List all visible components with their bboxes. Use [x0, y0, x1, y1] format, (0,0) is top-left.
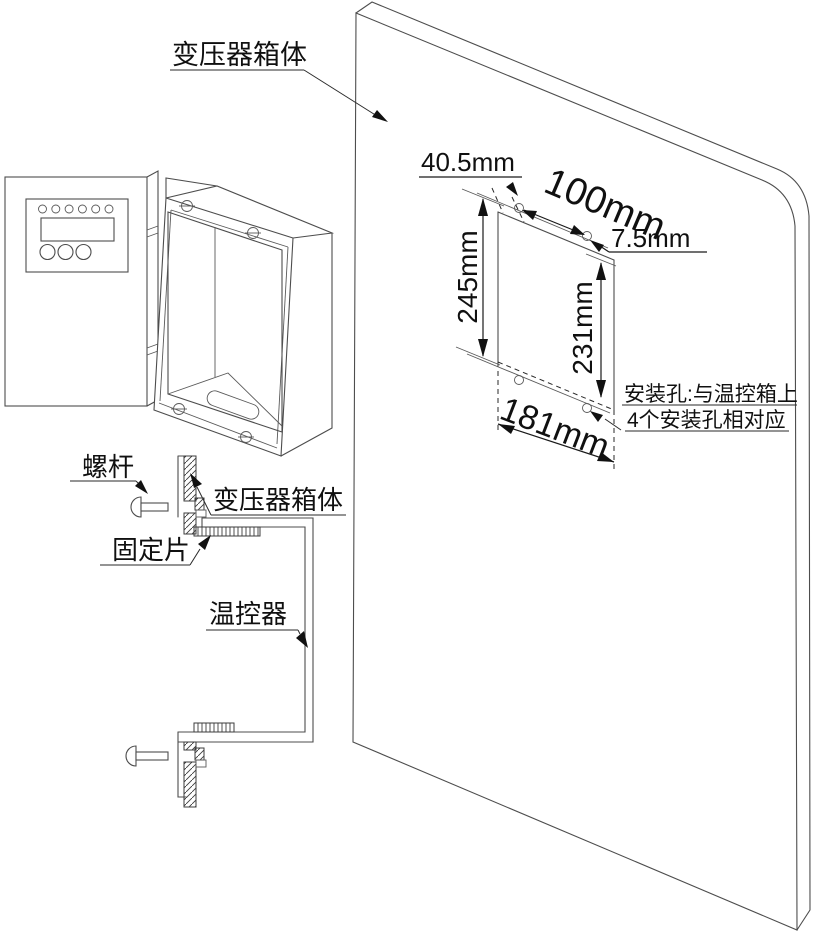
screw-bottom [126, 746, 168, 766]
transformer-box-top-label: 变压器箱体 [172, 40, 307, 70]
wall-section-bottom [184, 742, 206, 807]
dim-231mm-label: 231mm [567, 281, 598, 374]
callout-transformer-box-section: 变压器箱体 [190, 473, 346, 515]
dim-40-5mm-label: 40.5mm [421, 147, 515, 177]
dim-7-5mm-label: 7.5mm [611, 223, 690, 253]
installation-diagram: 40.5mm 100mm 7.5mm 245mm 231mm 181mm [0, 0, 826, 934]
note-line-2: 4个安装孔相对应 [627, 409, 786, 432]
transformer-box-section-label: 变压器箱体 [213, 485, 343, 515]
callout-fixing-piece: 固定片 [100, 535, 211, 565]
dim-245mm-label: 245mm [452, 230, 483, 323]
mounting-bezel [154, 178, 332, 456]
screw-top [131, 497, 168, 517]
transformer-panel [353, 2, 810, 930]
screw-label: 螺杆 [82, 452, 134, 482]
callout-screw: 螺杆 [70, 452, 148, 494]
callout-thermostat: 温控器 [206, 599, 308, 648]
fixing-strip-top [194, 527, 260, 536]
note-line-1: 安装孔:与温控箱上 [624, 383, 798, 406]
diagram-canvas: 40.5mm 100mm 7.5mm 245mm 231mm 181mm [0, 0, 826, 934]
section-detail: 螺杆 变压器箱体 固定片 温控器 [70, 452, 346, 807]
thermostat-label: 温控器 [209, 599, 287, 629]
fixing-strip-bottom [194, 723, 234, 732]
fixing-piece-label: 固定片 [112, 535, 190, 565]
wall-section-top [184, 456, 206, 534]
thermostat-front-unit [5, 171, 158, 406]
